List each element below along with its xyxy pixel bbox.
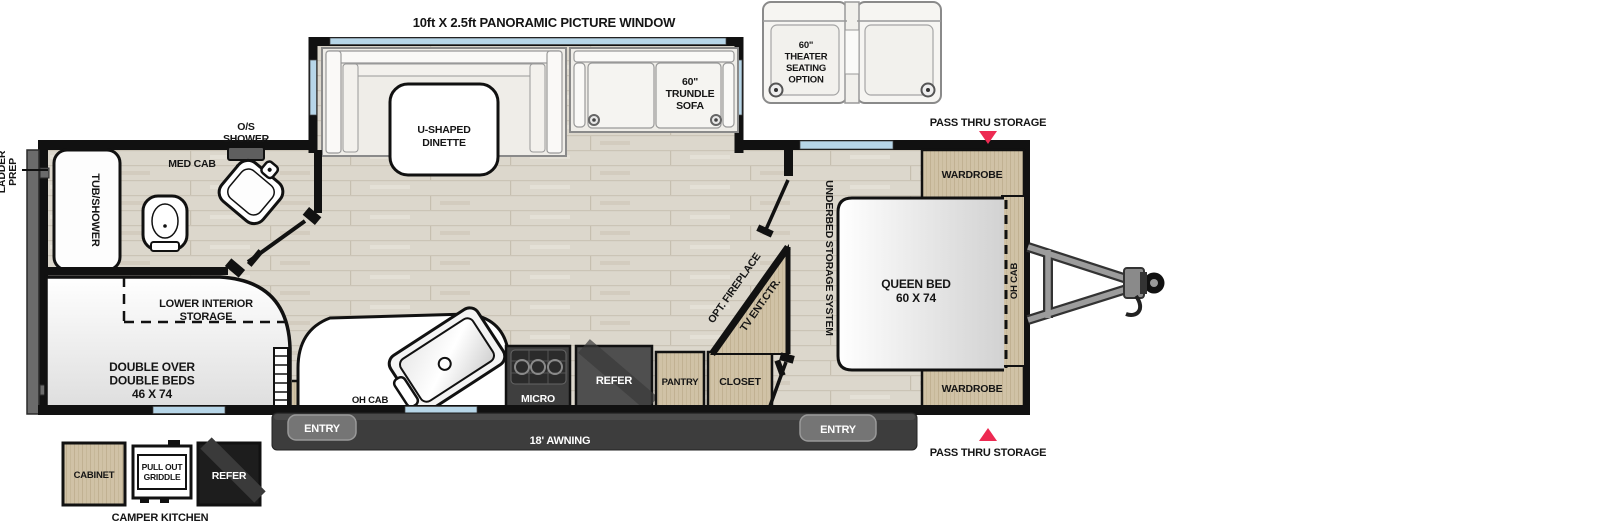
pass-thru-top: PASS THRU STORAGE [930,117,1047,144]
panoramic-window [330,38,726,45]
pull-out-griddle: PULL OUTGRIDDLE [133,440,191,503]
pass-thru-bottom: PASS THRU STORAGE [930,428,1047,459]
entry-left-label: ENTRY [304,423,341,435]
wardrobe-bottom-label: WARDROBE [942,383,1003,395]
theater-seating-option: 60"THEATERSEATINGOPTION [763,2,941,103]
camper-refer-label: REFER [212,470,247,482]
floorplan-page: LADDERPREP U-SHAPEDDINETTE [0,0,1600,529]
dinette-label: U-SHAPEDDINETTE [417,124,471,149]
bedroom-oh-cab-label: OH CAB [1009,263,1020,300]
slideout-room: U-SHAPEDDINETTE 60"TRUNDLESOFA [310,38,742,175]
closet-label: CLOSET [719,376,761,388]
ladder-prep-rail [27,150,39,414]
awning-label: 18' AWNING [530,435,591,447]
bedroom-window [800,141,893,149]
pass-thru-bottom-label: PASS THRU STORAGE [930,447,1047,459]
micro-range: MICRO [506,346,570,410]
awning-assembly: 18' AWNING ENTRY ENTRY [272,413,917,450]
refer-label: REFER [596,375,633,387]
u-dinette: U-SHAPEDDINETTE [322,48,566,175]
kitchen-oh-cab-label: OH CAB [352,395,389,406]
slideout-window-left [310,60,317,115]
entry-right-label: ENTRY [820,424,857,436]
camper-refer: REFER [198,443,260,505]
bunk-area: LOWER INTERIORSTORAGE DOUBLE OVERDOUBLE … [46,277,309,408]
refrigerator: REFER [576,346,652,410]
floorplan-svg: LADDERPREP U-SHAPEDDINETTE [0,0,1600,529]
panoramic-window-label: 10ft X 2.5ft PANORAMIC PICTURE WINDOW [413,15,676,30]
os-shower-label: O/SSHOWER [223,121,270,145]
outside-shower-icon [228,147,264,160]
camper-kitchen: CABINET PULL OUTGRIDDLE REFER CAMPER KIT… [63,440,260,524]
med-cab-label: MED CAB [168,158,216,170]
ladder-prep-label: LADDERPREP [0,150,19,193]
pass-thru-top-label: PASS THRU STORAGE [930,117,1047,129]
camper-cabinet-label: CABINET [74,470,115,481]
kitchen-window [405,407,477,414]
trundle-sofa: 60"TRUNDLESOFA [570,48,738,132]
underbed-storage-label: UNDERBED STORAGE SYSTEM [823,180,835,336]
griddle-label: PULL OUTGRIDDLE [142,462,184,482]
pantry-label: PANTRY [662,377,700,388]
micro-label: MICRO [521,393,555,405]
wardrobe-top-label: WARDROBE [942,169,1003,181]
arrow-up-icon [979,428,997,441]
bunk-window [153,407,225,414]
bedroom-door-stub [784,148,793,176]
camper-kitchen-label: CAMPER KITCHEN [112,512,209,524]
hitch-assembly [1028,247,1165,320]
tub-shower-label: TUB/SHOWER [89,173,101,246]
tub-shower [54,150,120,270]
